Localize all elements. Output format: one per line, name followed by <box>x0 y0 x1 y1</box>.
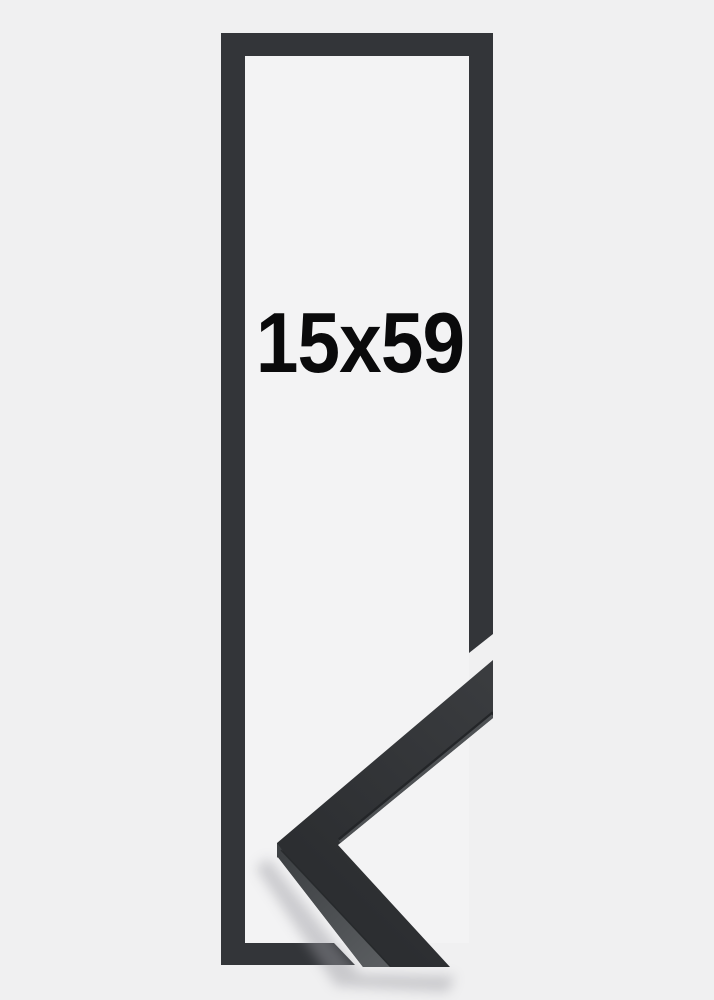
product-image: 15x59 <box>0 0 714 1000</box>
size-label: 15x59 <box>256 296 464 391</box>
frame-outline-top-bar <box>221 33 493 56</box>
frame-outline-right-bar <box>469 33 493 653</box>
frame-outline-left-bar <box>221 33 245 965</box>
frame-illustration: 15x59 <box>0 0 714 1000</box>
